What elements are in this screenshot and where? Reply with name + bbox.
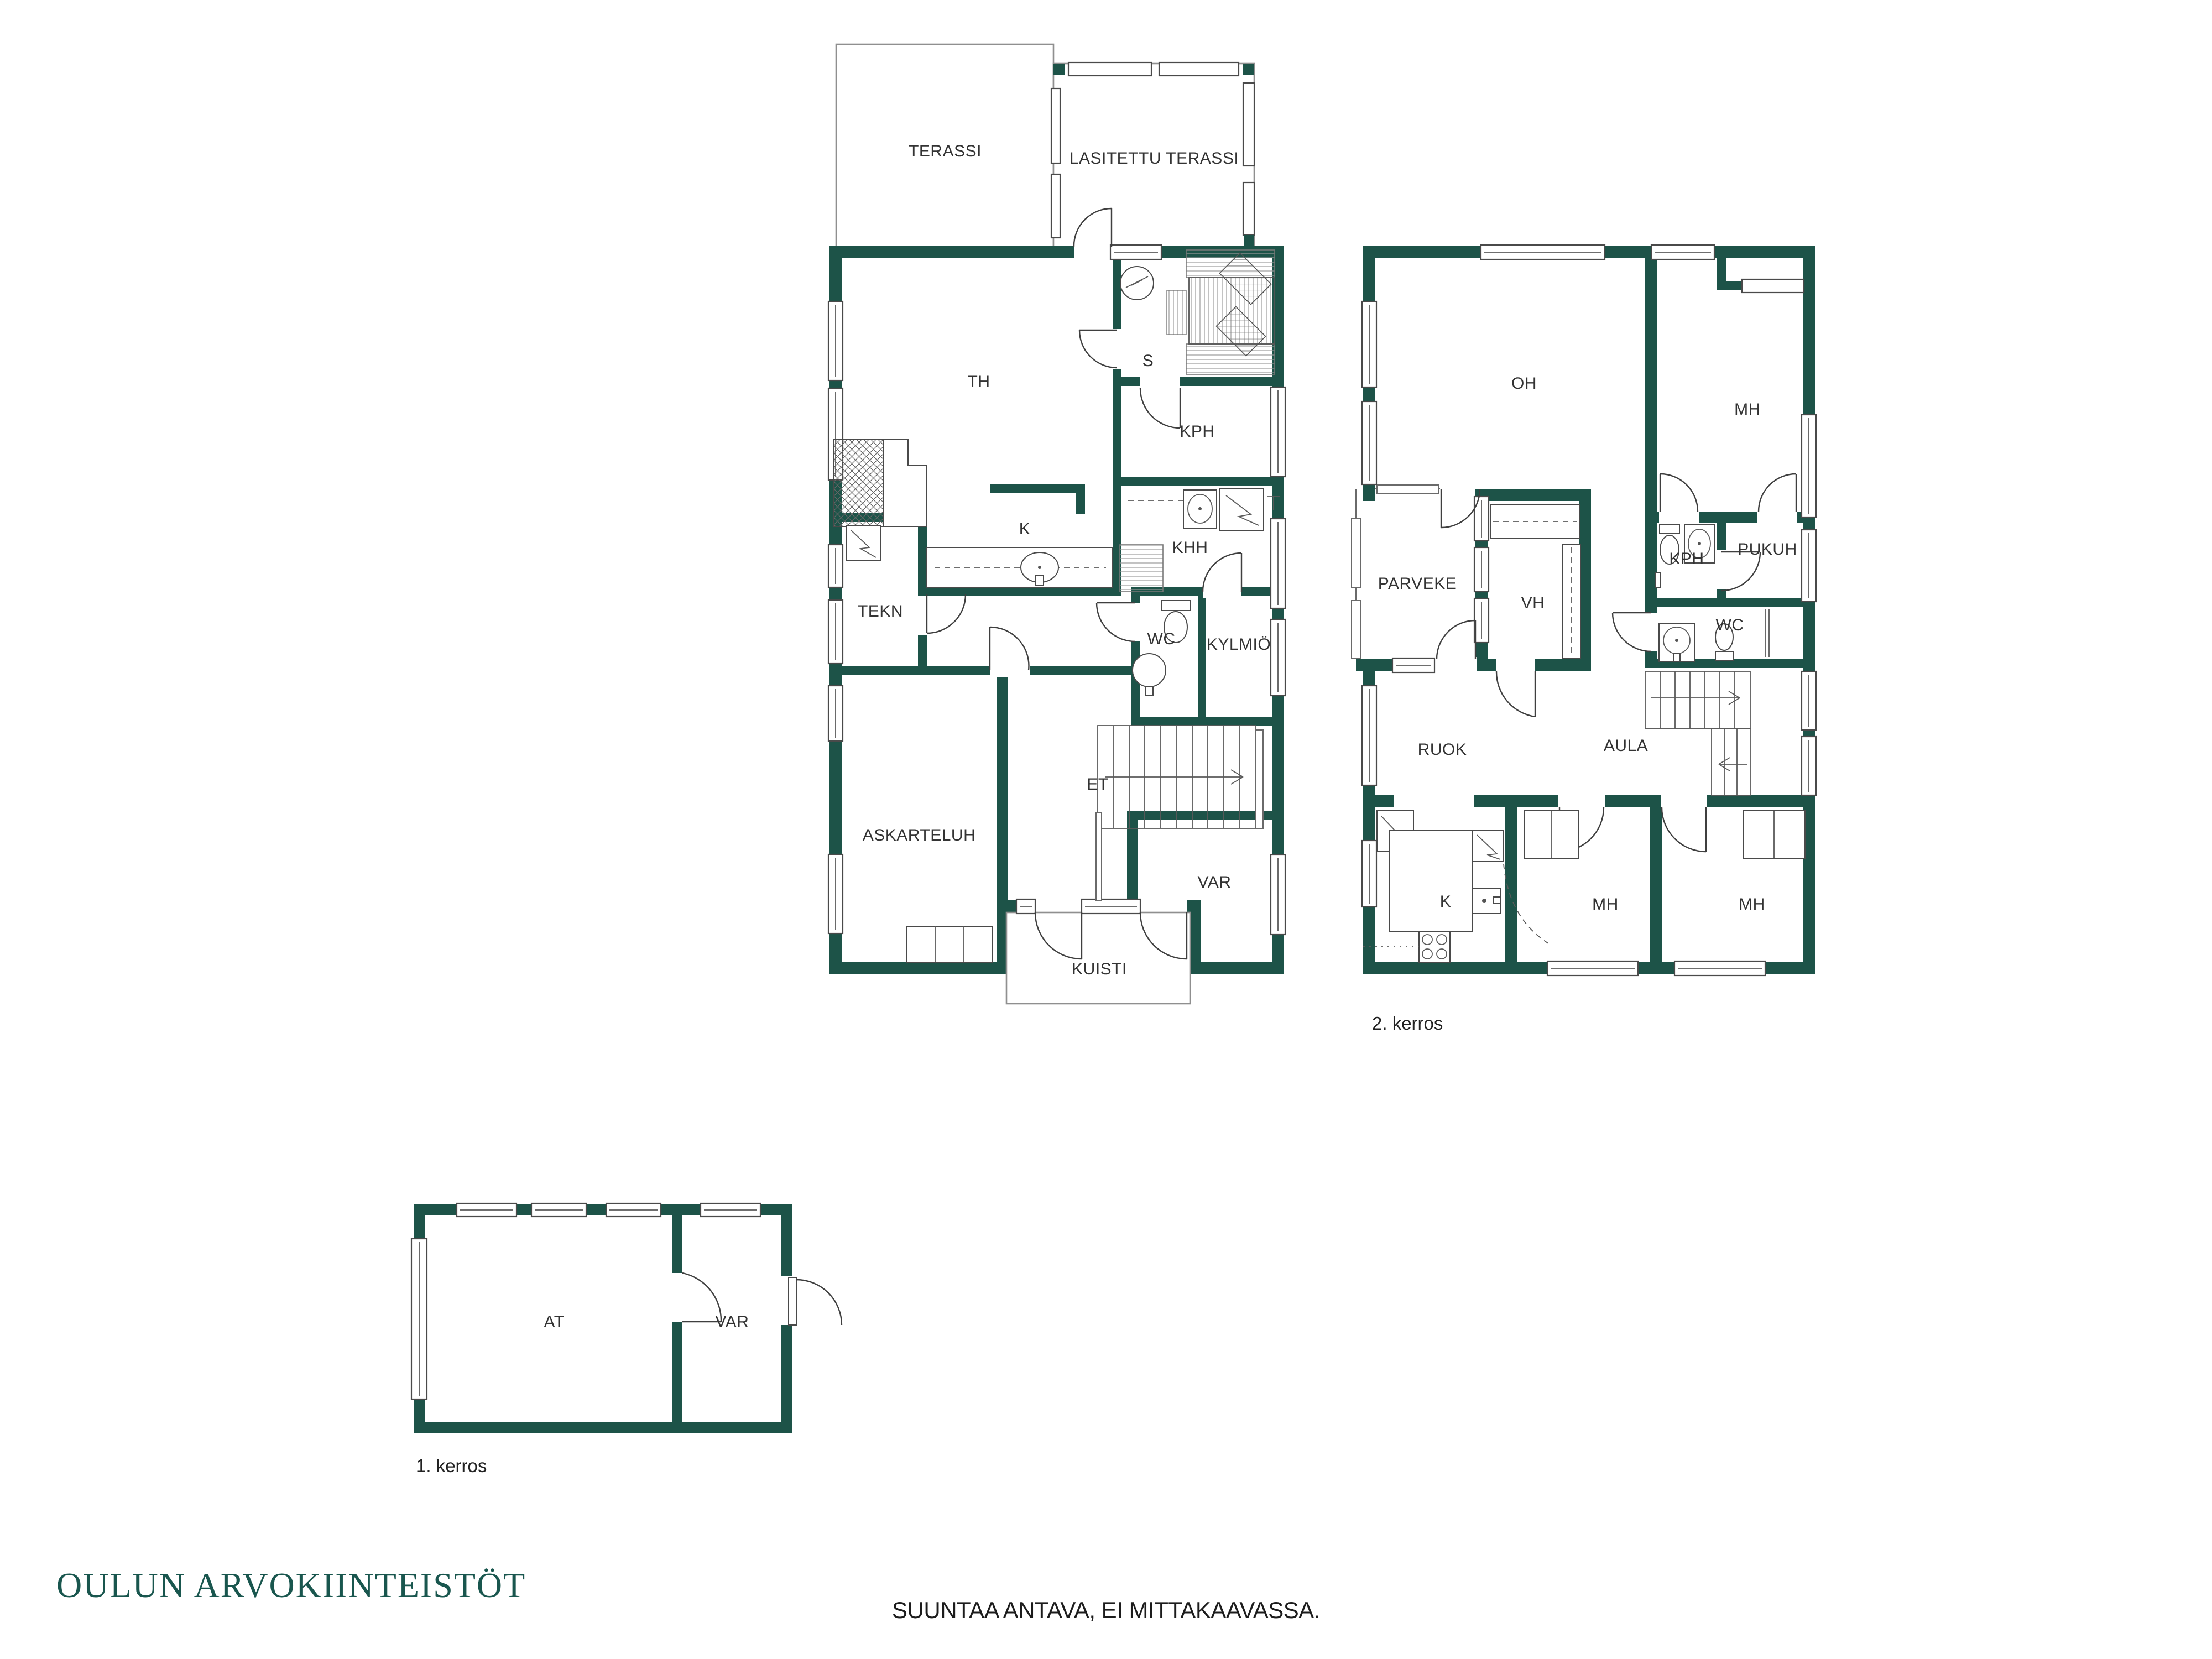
fireplace — [834, 440, 927, 526]
room-label-k1: K — [1019, 520, 1031, 538]
room-label-vh: VH — [1521, 594, 1545, 612]
water-heater-icon — [846, 525, 880, 561]
room-label-terassi: TERASSI — [909, 142, 982, 160]
room-label-kuisti: KUISTI — [1072, 960, 1127, 978]
vh-closet — [1491, 504, 1580, 658]
bed — [1167, 250, 1275, 374]
room-label-mh2: MH — [1592, 895, 1619, 914]
doors-outbuilding — [682, 1273, 842, 1325]
sofa — [907, 926, 993, 962]
room-label-th: TH — [968, 373, 990, 391]
room-label-mh3: MH — [1739, 895, 1765, 914]
room-label-et: ET — [1087, 775, 1108, 794]
room-label-kph1: KPH — [1180, 422, 1214, 441]
shower-icon — [1655, 573, 1661, 587]
balcony-railing — [1352, 485, 1440, 659]
floorplan-drawing: TERASSI LASITETTU TERASSI TH S KPH KHH K… — [0, 0, 2212, 1659]
closets — [1525, 811, 1805, 858]
porch-outline — [1006, 912, 1190, 1004]
door-swing — [796, 1280, 842, 1325]
room-label-oh: OH — [1511, 374, 1537, 393]
room-label-askarteluh: ASKARTELUH — [863, 826, 976, 844]
room-label-kph2: KPH — [1669, 550, 1704, 568]
room-label-s: S — [1142, 352, 1154, 370]
room-label-var2: VAR — [716, 1313, 749, 1331]
sliding-door — [1766, 609, 1769, 657]
plan-floor1: TERASSI LASITETTU TERASSI TH S KPH KHH K… — [828, 44, 1285, 1004]
sink-icon — [1133, 654, 1166, 687]
room-label-at: AT — [544, 1313, 564, 1331]
disclaimer-text: SUUNTAA ANTAVA, EI MITTAKAAVASSA. — [0, 1597, 2212, 1624]
toilet-icon — [1660, 524, 1679, 533]
door-swing — [1660, 474, 1698, 512]
windows-outbuilding — [411, 1203, 760, 1399]
caption-outbuilding: 1. kerros — [416, 1455, 487, 1476]
caption-floor2: 2. kerros — [1372, 1013, 1443, 1034]
room-label-wc2: WC — [1716, 616, 1744, 634]
door-swing — [927, 594, 966, 633]
door-swing — [1437, 620, 1475, 659]
room-label-var1: VAR — [1198, 873, 1232, 891]
floorplan-page: TERASSI LASITETTU TERASSI TH S KPH KHH K… — [0, 0, 2212, 1659]
plan-outbuilding: AT VAR 1. kerros — [411, 1203, 842, 1476]
room-label-tekn: TEKN — [858, 602, 903, 620]
room-label-parveke: PARVEKE — [1378, 575, 1457, 593]
kitchen-counter — [927, 547, 1113, 587]
room-label-lasitettu-terassi: LASITETTU TERASSI — [1070, 149, 1239, 168]
kitchen2 — [1363, 811, 1548, 962]
toilet-icon — [1161, 601, 1190, 611]
room-label-kylmio: KYLMIÖ — [1207, 635, 1271, 654]
room-label-k2: K — [1440, 893, 1452, 911]
kitchen-island — [1390, 831, 1473, 931]
room-label-ruok: RUOK — [1418, 740, 1467, 759]
room-label-aula: AULA — [1604, 737, 1648, 755]
door-swing — [1496, 671, 1535, 717]
stairs-floor2 — [1645, 671, 1750, 795]
room-label-mh1: MH — [1734, 400, 1761, 419]
partition-screen — [1096, 813, 1102, 900]
door-swing — [1662, 807, 1706, 852]
drying-rack — [1120, 545, 1163, 592]
room-label-pukuh: PUKUH — [1738, 540, 1797, 559]
room-label-khh: KHH — [1172, 539, 1208, 557]
door-swing — [1759, 474, 1796, 512]
room-label-wc1: WC — [1147, 630, 1176, 648]
stair-railing — [1255, 730, 1263, 828]
shower-icon — [1120, 267, 1154, 300]
closet-shelf — [1742, 279, 1804, 293]
plan-floor2: OH MH KPH PUKUH PARVEKE VH WC RUOK AULA … — [1352, 245, 1816, 1034]
door-swing — [1140, 388, 1180, 428]
